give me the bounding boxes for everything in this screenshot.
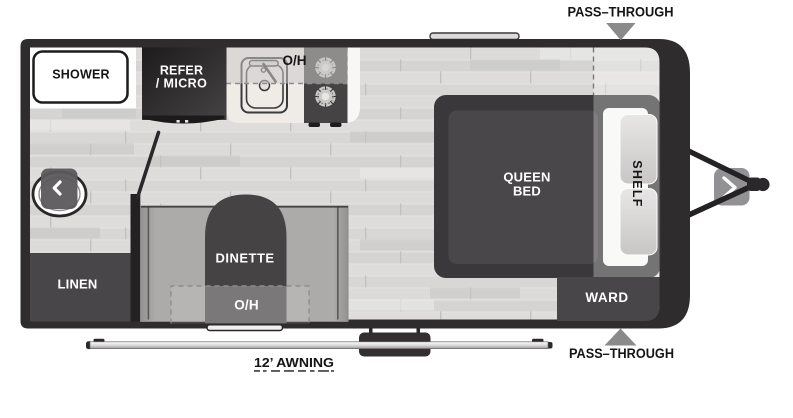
svg-text:SHOWER: SHOWER xyxy=(52,68,109,82)
svg-text:O/H: O/H xyxy=(234,298,259,313)
svg-text:/ MICRO: / MICRO xyxy=(156,77,207,91)
svg-text:PASS–THROUGH: PASS–THROUGH xyxy=(568,5,674,20)
svg-text:PASS–THROUGH: PASS–THROUGH xyxy=(569,346,674,361)
svg-text:WARD: WARD xyxy=(585,290,628,305)
svg-text:SHELF: SHELF xyxy=(630,160,644,207)
svg-text:12’ AWNING: 12’ AWNING xyxy=(254,355,334,370)
svg-text:LINEN: LINEN xyxy=(58,277,98,292)
svg-text:BED: BED xyxy=(513,184,541,199)
svg-text:REFER: REFER xyxy=(160,64,203,78)
svg-text:O/H: O/H xyxy=(282,53,306,68)
svg-text:DINETTE: DINETTE xyxy=(215,251,274,266)
svg-text:QUEEN: QUEEN xyxy=(503,170,550,185)
